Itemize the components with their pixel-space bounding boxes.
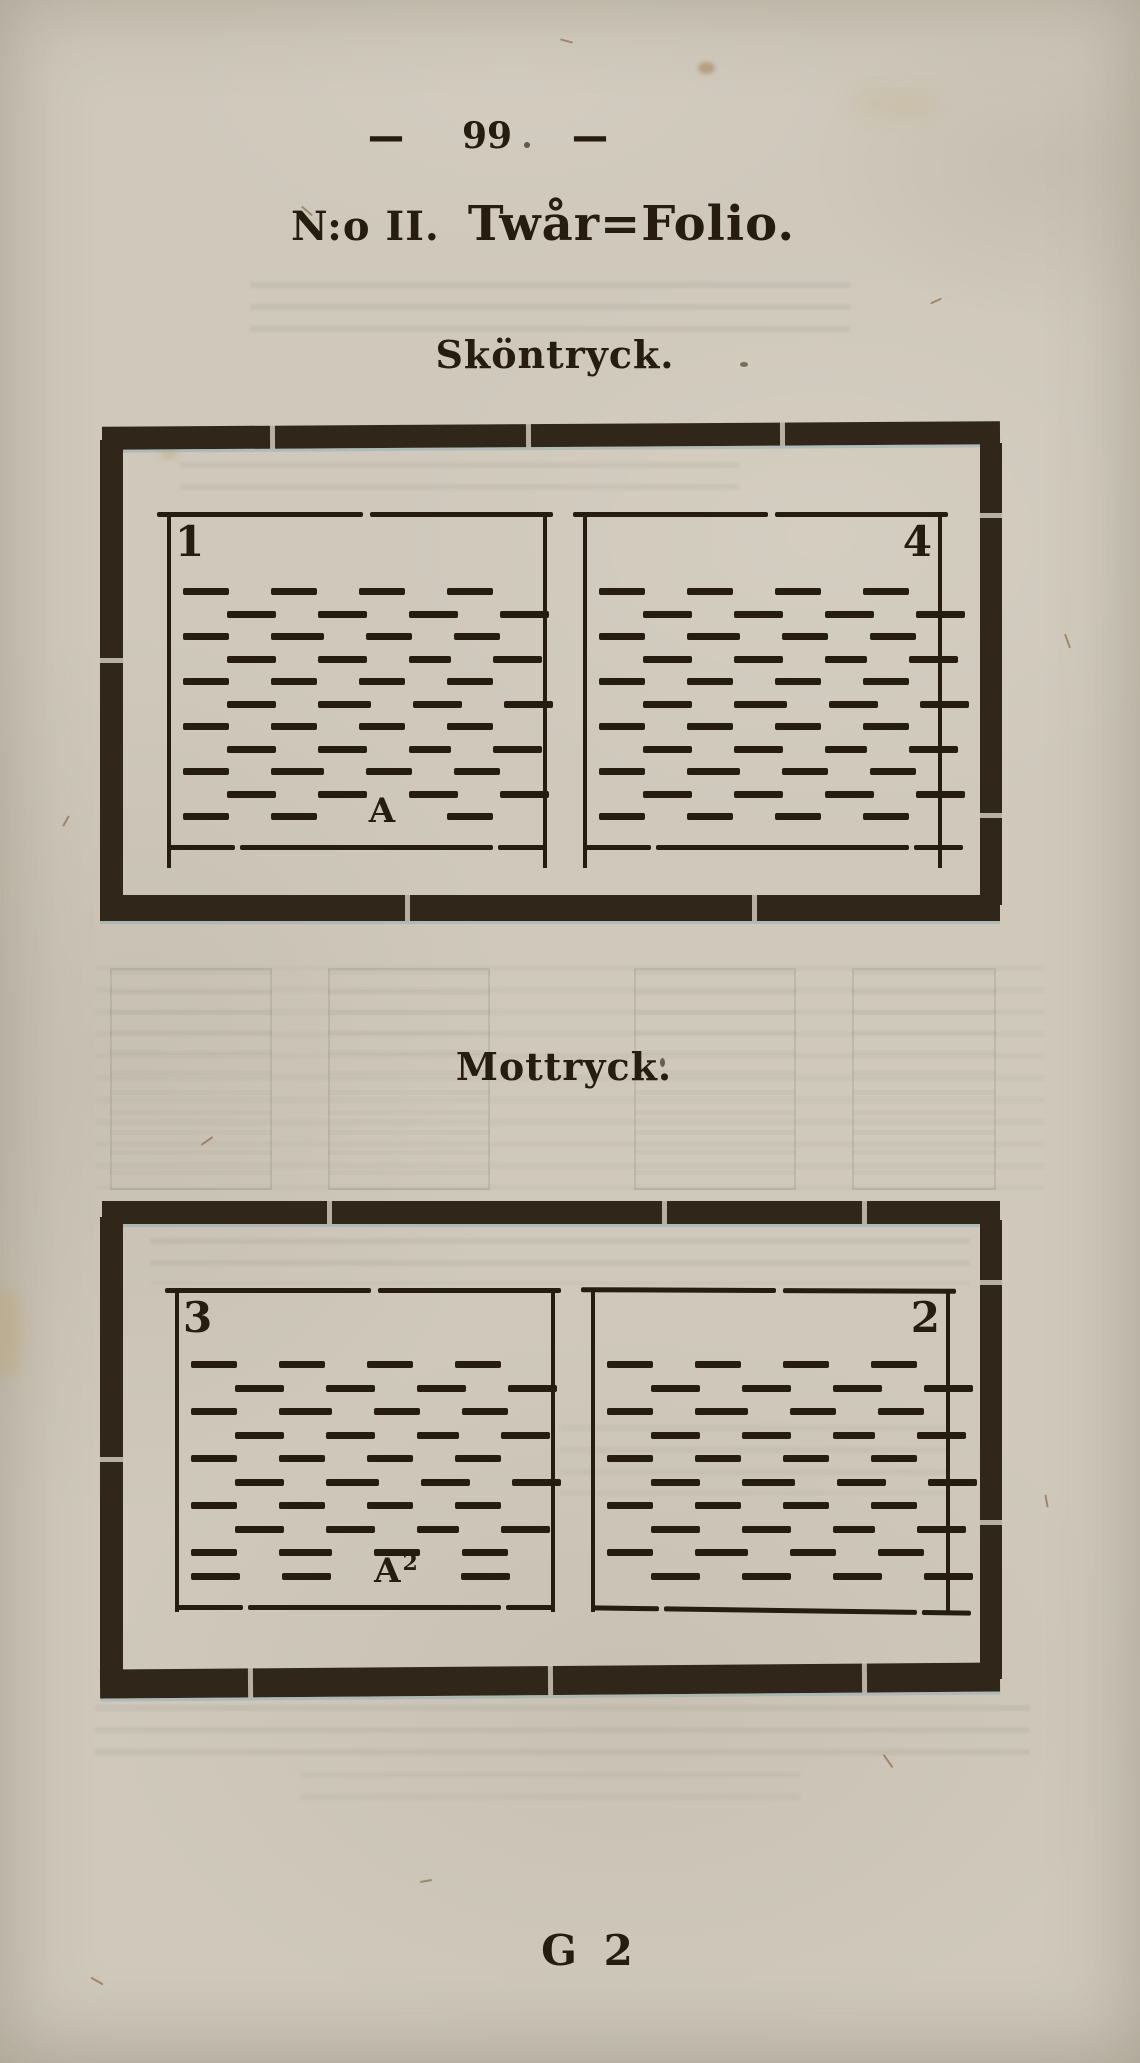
paper-fiber xyxy=(90,1977,103,1986)
forme-page-panel: 1 A xyxy=(157,512,553,884)
forme-page-panel: 4 xyxy=(573,512,948,884)
column-rule-left xyxy=(583,516,587,868)
heading-skontryck: Sköntryck. xyxy=(0,332,1110,377)
foot-rule xyxy=(167,845,547,850)
paper-fiber xyxy=(1044,1494,1048,1507)
foot-rule xyxy=(583,845,963,850)
ghost-text-band xyxy=(300,1772,800,1806)
panel-page-number: 4 xyxy=(903,520,932,564)
chase-bar-left xyxy=(100,440,123,903)
skontryck-forme: 1 A 4 xyxy=(100,424,1002,921)
head-rule xyxy=(157,512,553,517)
title-prefix: N:o II. xyxy=(291,203,440,250)
paper-fiber xyxy=(62,815,70,826)
heading-mottryck: Mottryck. xyxy=(0,1044,1128,1089)
text-line-dashes: A2 xyxy=(191,1361,547,1580)
head-rule xyxy=(165,1288,561,1293)
running-head: — 99 — xyxy=(368,116,606,156)
text-line-dashes xyxy=(599,588,934,820)
chase-bar-top xyxy=(102,421,1000,449)
chase-bar-right xyxy=(980,443,1002,905)
panel-page-number: 1 xyxy=(175,520,204,564)
paper-fiber xyxy=(201,1136,214,1146)
chase-bar-left xyxy=(100,1217,123,1677)
panel-page-number: 3 xyxy=(183,1296,212,1340)
panel-page-number: 2 xyxy=(911,1296,940,1340)
scanned-book-page: — 99 — N:o II.Twår=Folio. Sköntryck. 1 A… xyxy=(0,0,1140,2063)
ghost-text-band xyxy=(250,282,850,334)
paper-stain xyxy=(698,62,715,74)
head-rule-left: — xyxy=(368,111,402,161)
column-rule-left xyxy=(167,516,171,868)
column-rule-right xyxy=(551,1292,555,1612)
chase-bar-top xyxy=(102,1201,1000,1224)
gathering-signature: G 2 xyxy=(20,1926,1140,1975)
paper-fiber xyxy=(1064,634,1071,649)
signature-mark: A2 xyxy=(373,1556,419,1563)
paper-stain xyxy=(850,88,940,118)
page-folio-number: 99 xyxy=(462,116,512,156)
column-rule-right xyxy=(946,1292,950,1612)
text-line-dashes xyxy=(607,1361,942,1580)
forme-page-panel: 3 A2 xyxy=(165,1288,561,1650)
paper-fiber xyxy=(883,1754,894,1768)
column-rule-left xyxy=(175,1292,179,1612)
head-rule xyxy=(581,1287,956,1294)
text-line-dashes: A xyxy=(183,588,539,820)
foot-rule xyxy=(175,1605,555,1610)
head-rule-right: — xyxy=(572,111,606,161)
chase-bar-right xyxy=(980,1220,1002,1679)
column-rule-right xyxy=(543,516,547,868)
title-main: Twår=Folio. xyxy=(468,196,795,252)
paper-stain xyxy=(0,1290,22,1376)
paper-fiber xyxy=(420,1879,432,1883)
column-rule-left xyxy=(591,1292,595,1612)
chase-bar-bottom xyxy=(100,895,1000,921)
ghost-text-band xyxy=(95,1705,1030,1763)
chase-bar-bottom xyxy=(100,1662,1000,1698)
section-title: N:o II.Twår=Folio. xyxy=(0,196,1086,252)
mottryck-forme: 3 A2 2 xyxy=(100,1201,1002,1695)
paper-fiber xyxy=(560,38,573,43)
column-rule-right xyxy=(938,516,942,868)
paper-fiber xyxy=(930,298,942,305)
signature-mark: A xyxy=(359,796,405,803)
forme-page-panel: 2 xyxy=(581,1288,956,1650)
foot-rule xyxy=(591,1605,971,1615)
head-rule xyxy=(573,512,948,517)
